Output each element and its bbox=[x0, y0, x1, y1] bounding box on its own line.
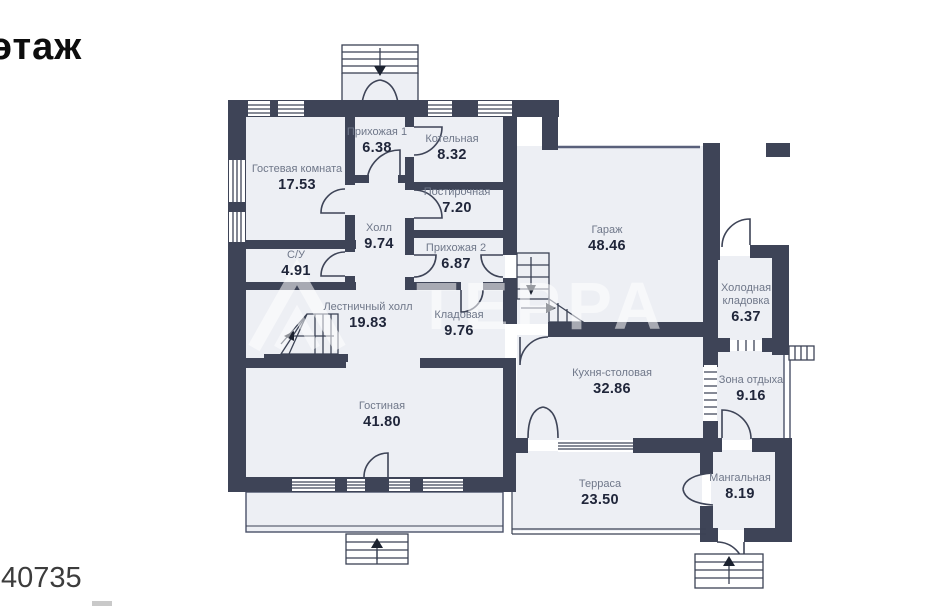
room-area: 8.19 bbox=[690, 486, 790, 503]
room-name: Холодная кладовка bbox=[708, 282, 784, 308]
room-name: Прихожая 2 bbox=[406, 242, 506, 255]
room-name: Гостевая комната bbox=[250, 163, 345, 176]
room-label: Гараж48.46 bbox=[562, 224, 652, 256]
bottom-edge-artifact bbox=[92, 601, 112, 606]
room-label: Лестничный холл19.83 bbox=[322, 301, 414, 333]
room-name: Постирочная bbox=[402, 186, 512, 199]
room-label: Мангальная8.19 bbox=[690, 472, 790, 504]
room-name: Гараж bbox=[562, 224, 652, 237]
room-area: 19.83 bbox=[322, 315, 414, 332]
room-area: 4.91 bbox=[261, 263, 331, 280]
room-name: Гостиная bbox=[337, 400, 427, 413]
room-label: Кладовая9.76 bbox=[414, 309, 504, 341]
room-name: Холл bbox=[344, 222, 414, 235]
room-label: Терраса23.50 bbox=[555, 478, 645, 510]
room-name: Котельная bbox=[402, 133, 502, 146]
room-area: 7.20 bbox=[402, 200, 512, 217]
listing-number: 40735 bbox=[1, 562, 82, 595]
room-area: 9.76 bbox=[414, 323, 504, 340]
room-area: 23.50 bbox=[555, 492, 645, 509]
room-area: 48.46 bbox=[562, 238, 652, 255]
room-label: Гостиная41.80 bbox=[337, 400, 427, 432]
floor-title: этаж bbox=[0, 26, 82, 69]
room-label: С/У4.91 bbox=[261, 249, 331, 281]
room-area: 9.74 bbox=[344, 236, 414, 253]
room-area: 32.86 bbox=[552, 381, 672, 398]
room-name: Кухня-столовая bbox=[552, 367, 672, 380]
room-label: Кухня-столовая32.86 bbox=[552, 367, 672, 399]
room-label: Холодная кладовка6.37 bbox=[708, 282, 784, 327]
room-name: Кладовая bbox=[414, 309, 504, 322]
room-name: С/У bbox=[261, 249, 331, 262]
room-name: Терраса bbox=[555, 478, 645, 491]
room-area: 6.87 bbox=[406, 256, 506, 273]
room-label: Гостевая комната17.53 bbox=[250, 163, 345, 195]
room-label: Постирочная7.20 bbox=[402, 186, 512, 218]
room-label: Котельная8.32 bbox=[402, 133, 502, 165]
room-name: Лестничный холл bbox=[322, 301, 414, 314]
room-area: 17.53 bbox=[250, 177, 345, 194]
room-area: 8.32 bbox=[402, 147, 502, 164]
room-area: 9.16 bbox=[706, 388, 796, 405]
room-label: Холл9.74 bbox=[344, 222, 414, 254]
floor-plan-drawing bbox=[0, 0, 926, 606]
room-area: 41.80 bbox=[337, 414, 427, 431]
room-area: 6.37 bbox=[708, 309, 784, 326]
room-label: Зона отдыха9.16 bbox=[706, 374, 796, 406]
room-label: Прихожая 26.87 bbox=[406, 242, 506, 274]
floor-plan-page: ТЕРРА Гостевая комната17.53Прихожая 16.3… bbox=[0, 0, 926, 606]
room-name: Зона отдыха bbox=[706, 374, 796, 387]
room-name: Мангальная bbox=[690, 472, 790, 485]
